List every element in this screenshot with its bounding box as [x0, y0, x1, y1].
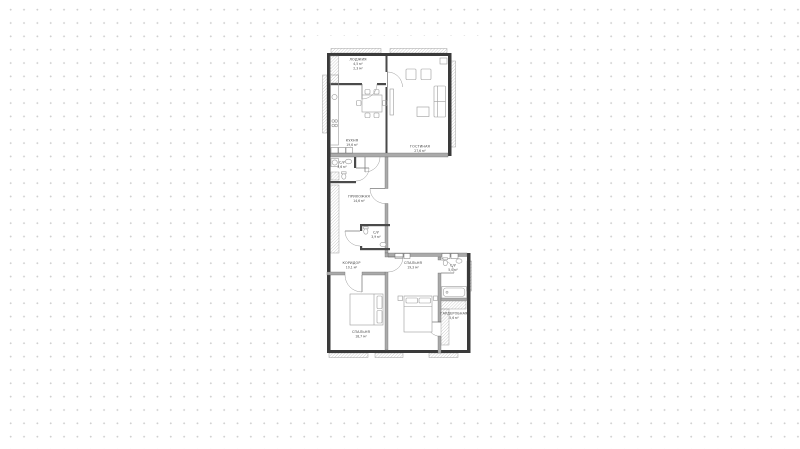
svg-text:спальня: спальня — [404, 261, 423, 265]
shaft-boxes — [331, 148, 458, 259]
room-label-corridor: коридор 10,1 м² — [342, 261, 360, 270]
room-label-bedroom-right: спальня 19,3 м² — [404, 261, 423, 270]
svg-text:с/у: с/у — [450, 264, 457, 268]
svg-text:5,6 м²: 5,6 м² — [449, 316, 459, 320]
svg-text:лоджия: лоджия — [349, 58, 367, 62]
svg-text:19,3 м²: 19,3 м² — [407, 266, 419, 270]
svg-text:10,1 м²: 10,1 м² — [346, 266, 358, 270]
svg-text:2,3 м²: 2,3 м² — [353, 67, 363, 71]
svg-text:с/у: с/у — [373, 231, 380, 235]
svg-text:14,6 м²: 14,6 м² — [353, 199, 365, 203]
room-label-kitchen: кухня 19,6 м² — [346, 139, 359, 148]
room-label-living-room: гостиная 27,6 м² — [410, 145, 431, 154]
svg-text:4,5 м²: 4,5 м² — [353, 62, 363, 66]
room-label-bedroom-left: спальня 18,7 м² — [352, 330, 371, 339]
room-label-wc-2: с/у 3,9 м² — [371, 231, 381, 240]
floor-plan: лоджия 4,5 м² 2,3 м² кухня 19,6 м² гости… — [320, 45, 472, 358]
room-label-loggia: лоджия 4,5 м² 2,3 м² — [349, 58, 367, 71]
svg-text:прихожая: прихожая — [348, 195, 370, 199]
svg-text:3,9 м²: 3,9 м² — [371, 235, 381, 239]
svg-text:3,6 м²: 3,6 м² — [337, 165, 347, 169]
svg-text:5,0 м²: 5,0 м² — [448, 268, 458, 272]
svg-text:27,6 м²: 27,6 м² — [414, 149, 426, 153]
canvas: { "plan": { "title": "floor-plan", "room… — [0, 0, 800, 449]
svg-text:кухня: кухня — [346, 139, 359, 143]
svg-text:гардеробная: гардеробная — [440, 312, 468, 316]
svg-text:коридор: коридор — [342, 261, 360, 265]
svg-text:19,6 м²: 19,6 м² — [346, 143, 358, 147]
svg-text:с/у: с/у — [339, 161, 346, 165]
room-label-hallway: прихожая 14,6 м² — [348, 195, 370, 204]
svg-text:18,7 м²: 18,7 м² — [355, 335, 367, 339]
room-label-wc-3: с/у 5,0 м² — [448, 264, 458, 273]
svg-text:гостиная: гостиная — [410, 145, 431, 149]
svg-text:спальня: спальня — [352, 330, 371, 334]
